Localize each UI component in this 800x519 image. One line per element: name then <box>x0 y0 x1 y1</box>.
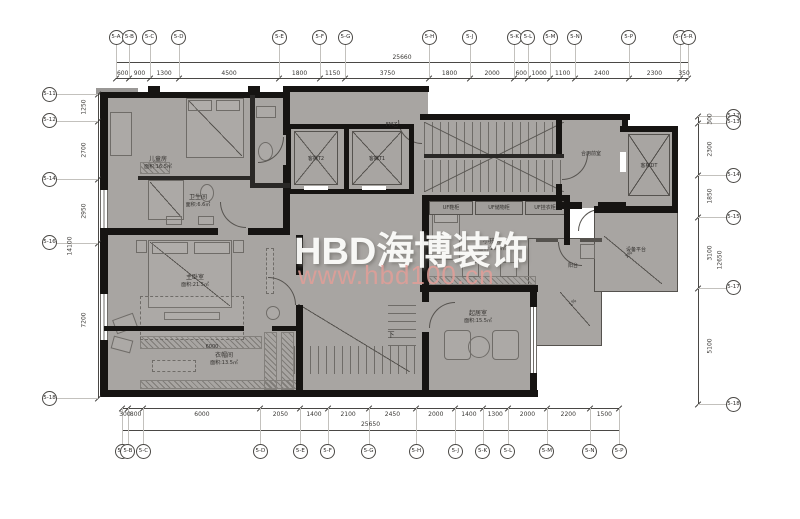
axis-num: 3100 <box>707 245 714 260</box>
sitting-table <box>468 336 490 358</box>
axis-bub: 5-G <box>361 444 376 459</box>
children-desk <box>110 112 132 156</box>
axis-bub: 5-11 <box>42 87 57 102</box>
axis-grid-left: 5-115-125-145-165-1812502700295072001410… <box>42 94 112 398</box>
axis-bub: 5-G <box>338 30 353 45</box>
axis-num: 2100 <box>340 411 355 418</box>
axis-tot: 25660 <box>392 54 411 61</box>
axis-lead <box>429 44 430 78</box>
axis-tot: 14100 <box>67 236 74 255</box>
room-name: 卫生间 <box>172 194 224 202</box>
elevator-dt-label: 客梯DT <box>628 162 670 169</box>
axis-line <box>116 78 688 79</box>
wall-shaft-right <box>409 124 414 194</box>
axis-bub: 5-C <box>136 444 151 459</box>
room-label-sitting: 起居室 面积:15.5㎡ <box>448 310 508 325</box>
axis-grid-right: 5-125-135-145-155-175-183002300185031005… <box>694 116 756 404</box>
axis-bub: 5-J <box>448 444 463 459</box>
axis-bub: 5-13 <box>726 115 741 130</box>
wall-master-right-b <box>296 305 303 396</box>
master-rug <box>140 296 244 340</box>
axis-num: 1500 <box>597 411 612 418</box>
room-label-bathroom: 卫生间 面积:6.6㎡ <box>172 194 224 209</box>
room-area: 面积:15.5㎡ <box>448 318 508 325</box>
axis-num: 800 <box>130 411 141 418</box>
axis-bub: 5-E <box>293 444 308 459</box>
wall-lobby-bottom-b <box>598 202 626 209</box>
axis-num: 1150 <box>325 70 340 77</box>
master-nightstand-1 <box>136 240 147 253</box>
axis-num: 2000 <box>484 70 499 77</box>
axis-line <box>122 430 619 431</box>
wall-cloak-divider-b <box>272 326 302 331</box>
axis-lead <box>416 408 417 445</box>
wall-balcony-divider-b <box>580 238 602 242</box>
axis-lead <box>575 44 576 78</box>
axis-bub: 5-15 <box>726 210 741 225</box>
axis-bub: 5-16 <box>42 235 57 250</box>
wall-bath1-partition-h <box>250 183 290 188</box>
axis-num: 600 <box>515 70 526 77</box>
axis-lead <box>143 408 144 445</box>
room-label-cloak: 衣帽间 面积:13.5㎡ <box>196 352 252 367</box>
axis-lead <box>300 408 301 445</box>
elevator-t2-label: 客梯T2 <box>294 155 338 162</box>
room-label-master: 主卧室 面积:21.5㎡ <box>160 274 230 289</box>
axis-bub: 5-L <box>520 30 535 45</box>
axis-num: 2300 <box>707 141 714 156</box>
axis-tot: 12650 <box>717 250 724 269</box>
axis-bub: 5-F <box>312 30 327 45</box>
wall-top-center <box>283 86 429 92</box>
master-nightstand-2 <box>233 240 244 253</box>
wall-bottom <box>104 390 538 397</box>
axis-bub: 5-18 <box>42 391 57 406</box>
floorplan-sheet: 客梯T2 客梯T1 客梯DT <box>0 0 800 519</box>
hatch-duct-1 <box>264 332 277 390</box>
axis-lead <box>698 288 727 289</box>
wall-dt-top <box>620 126 678 132</box>
axis-num: 2450 <box>385 411 400 418</box>
axis-lead <box>470 44 471 78</box>
axis-lead <box>629 44 630 78</box>
axis-bub: 5-J <box>462 30 477 45</box>
stair-landing-divider <box>424 154 564 158</box>
wall-kids-top <box>429 195 570 201</box>
axis-lead <box>528 44 529 78</box>
axis-bub: 5-R <box>681 30 696 45</box>
axis-num: 1850 <box>707 189 714 204</box>
axis-bub: 5-B <box>120 444 135 459</box>
elevator-t2-door <box>304 186 328 190</box>
wall-shaft-divider <box>344 124 349 194</box>
axis-bub: 5-E <box>272 30 287 45</box>
axis-num: 2700 <box>81 142 88 157</box>
axis-line <box>698 116 699 404</box>
axis-lead <box>320 44 321 78</box>
cabinet-shoe: UF鞋柜 <box>429 201 473 215</box>
axis-line <box>98 94 99 398</box>
axis-num: 1300 <box>156 70 171 77</box>
axis-num: 2000 <box>428 411 443 418</box>
axis-bub: 5-L <box>500 444 515 459</box>
room-area: 面积:13.5㎡ <box>196 360 252 367</box>
wall-cloak-divider-a <box>104 326 244 331</box>
axis-line <box>116 62 688 63</box>
axis-num: 7200 <box>81 313 88 328</box>
axis-num: 350 <box>678 70 689 77</box>
axis-num: 3750 <box>380 70 395 77</box>
room-name: 主卧室 <box>160 274 230 282</box>
axis-bub: 5-C <box>142 30 157 45</box>
axis-bub: 5-M <box>543 30 558 45</box>
axis-lead <box>345 44 346 78</box>
wall-corridor-east-b <box>422 332 429 397</box>
room-area: 面积:21.5㎡ <box>160 282 230 289</box>
axis-grid-bottom: 5-A5-B5-C5-D5-E5-F5-G5-H5-J5-K5-L5-M5-N5… <box>122 404 619 462</box>
axis-lead <box>56 243 98 244</box>
axis-lead <box>547 408 548 445</box>
axis-num: 2950 <box>81 203 88 218</box>
axis-bub: 5-P <box>612 444 627 459</box>
axis-tot: 25650 <box>361 421 380 428</box>
axis-bub: 5-N <box>582 444 597 459</box>
axis-num: 1100 <box>555 70 570 77</box>
column-1 <box>148 86 160 98</box>
axis-num: 2300 <box>647 70 662 77</box>
axis-bub: 5-K <box>475 444 490 459</box>
axis-bub: 5-18 <box>726 397 741 412</box>
axis-num: 2050 <box>273 411 288 418</box>
axis-lead <box>328 408 329 445</box>
wall-bath1-partition-v <box>250 95 255 187</box>
axis-bub: 5-H <box>422 30 437 45</box>
axis-num: 1300 <box>488 411 503 418</box>
room-label-children: 儿童房 面积:16.5㎡ <box>128 156 188 171</box>
axis-num: 2400 <box>594 70 609 77</box>
axis-lead <box>483 408 484 445</box>
fire-door-label: FM乙 <box>380 121 404 128</box>
wall-sitting-right-a <box>530 285 537 307</box>
axis-bub: 5-N <box>567 30 582 45</box>
plant <box>266 306 280 320</box>
axis-num: 1800 <box>442 70 457 77</box>
axis-bub: 5-M <box>539 444 554 459</box>
wall-lobby-left-a <box>556 114 562 154</box>
axis-lead <box>455 408 456 445</box>
axis-num: 900 <box>134 70 145 77</box>
axis-num: 1400 <box>306 411 321 418</box>
axis-num: 300 <box>707 114 714 125</box>
elevator-t1-label: 客梯T1 <box>352 155 402 162</box>
room-name: 衣帽间 <box>196 352 252 360</box>
axis-lead <box>129 44 130 78</box>
axis-lead <box>279 44 280 78</box>
axis-num: 4500 <box>221 70 236 77</box>
wall-lobby-right <box>622 114 628 130</box>
wall-kids-right <box>564 195 570 245</box>
wall-dt-right <box>672 126 678 212</box>
sitting-chair-1 <box>444 330 471 360</box>
room-label-lobby: 合用前室 <box>560 150 622 157</box>
room-name: 儿童房 <box>128 156 188 164</box>
wall-stair-top <box>420 114 630 120</box>
equipment-slope-line <box>604 236 662 284</box>
axis-num: 2200 <box>561 411 576 418</box>
window-sitting <box>530 307 537 373</box>
room-label-balcony: 阳台 <box>558 262 588 269</box>
children-pillow-2 <box>216 100 240 111</box>
wall-top-left <box>100 92 290 98</box>
inner-dimension-6000: 6000 <box>190 344 234 350</box>
axis-bub: 5-14 <box>726 168 741 183</box>
hatch-duct-2 <box>281 332 294 390</box>
axis-bub: 5-12 <box>42 113 57 128</box>
axis-lead <box>260 408 261 445</box>
axis-bub: 5-B <box>122 30 137 45</box>
axis-lead <box>550 44 551 78</box>
axis-num: 1250 <box>81 100 88 115</box>
axis-bub: 5-D <box>171 30 186 45</box>
axis-num: 1000 <box>531 70 546 77</box>
axis-lead <box>150 44 151 78</box>
room-name: 起居室 <box>448 310 508 318</box>
axis-lead <box>508 408 509 445</box>
stair-down-label: 下 <box>384 330 398 340</box>
axis-num: 1800 <box>292 70 307 77</box>
wall-bath2-partition <box>138 176 254 180</box>
bath2-sink-2 <box>198 216 214 225</box>
axis-num: 600 <box>117 70 128 77</box>
axis-grid-top: 5-A5-B5-C5-D5-E5-F5-G5-H5-J5-K5-L5-M5-N5… <box>116 30 688 84</box>
axis-lead <box>698 217 727 218</box>
axis-bub: 5-14 <box>42 172 57 187</box>
axis-lead <box>590 408 591 445</box>
wall-balcony-divider-a <box>536 238 558 242</box>
cloak-island <box>152 360 196 372</box>
axis-lead <box>56 398 98 399</box>
axis-lead <box>619 408 620 445</box>
axis-lead <box>56 121 98 122</box>
axis-lead <box>56 94 98 95</box>
bath2-sink-1 <box>166 216 182 225</box>
axis-bub: 5-F <box>320 444 335 459</box>
axis-bub: 5-D <box>253 444 268 459</box>
balcony-washer <box>580 244 595 259</box>
sitting-chair-2 <box>492 330 519 360</box>
elevator-t1-door <box>362 186 386 190</box>
axis-num: 1400 <box>461 411 476 418</box>
axis-num: 6000 <box>194 411 209 418</box>
room-area: 面积:16.5㎡ <box>128 164 188 171</box>
master-pillow-2 <box>194 242 230 254</box>
axis-bub: 5-17 <box>726 280 741 295</box>
axis-lead <box>698 404 727 405</box>
axis-bub: 5-P <box>621 30 636 45</box>
room-area: 面积:6.6㎡ <box>172 202 224 209</box>
children-pillow-1 <box>188 100 212 111</box>
axis-lead <box>179 44 180 78</box>
bath1-sink <box>256 106 276 118</box>
cabinet-storage: UF储物柜 <box>475 201 523 215</box>
axis-bub: 5-H <box>409 444 424 459</box>
master-pillow-1 <box>152 242 188 254</box>
watermark-site-url: www.hbd100.cn <box>298 260 495 291</box>
axis-num: 5100 <box>707 338 714 353</box>
axis-lead <box>698 175 727 176</box>
axis-lead <box>56 179 98 180</box>
axis-num: 2000 <box>520 411 535 418</box>
wall-children-divider-a <box>104 228 218 235</box>
